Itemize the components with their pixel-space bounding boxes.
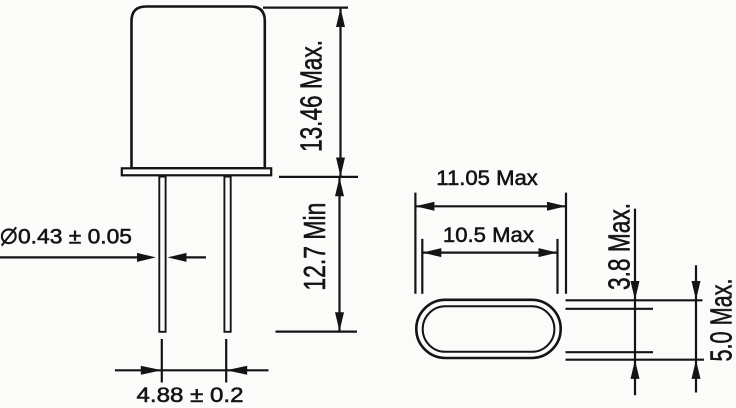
- svg-text:0.43 ± 0.05: 0.43 ± 0.05: [18, 226, 132, 249]
- svg-text:11.05 Max: 11.05 Max: [436, 167, 538, 190]
- svg-text:12.7 Min: 12.7 Min: [297, 203, 332, 291]
- svg-text:13.46 Max.: 13.46 Max.: [294, 40, 329, 152]
- svg-text:4.88 ± 0.2: 4.88 ± 0.2: [137, 384, 244, 407]
- svg-text:3.8 Max.: 3.8 Max.: [602, 203, 637, 290]
- svg-text:10.5 Max: 10.5 Max: [443, 224, 535, 247]
- svg-text:5.0 Max.: 5.0 Max.: [704, 279, 736, 362]
